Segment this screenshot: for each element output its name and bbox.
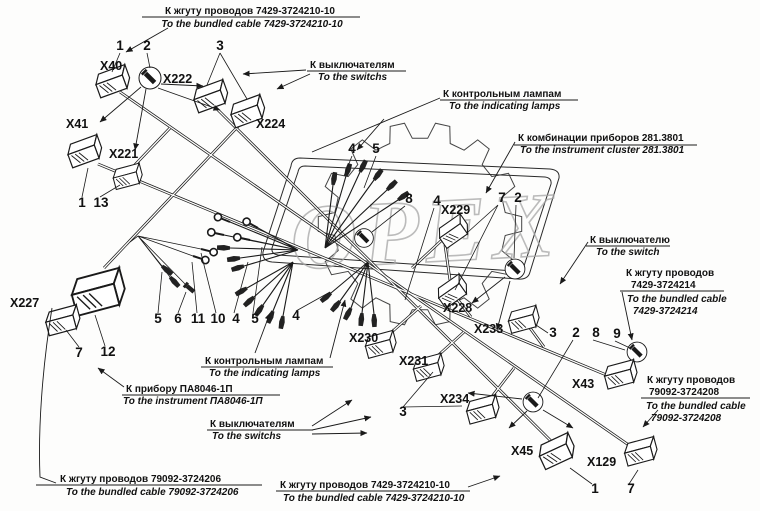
- item-number: 8: [405, 191, 413, 206]
- loose-terminals: [130, 236, 218, 294]
- item-number: 2: [572, 325, 580, 340]
- label-x129: X129: [587, 455, 616, 469]
- connector-x221: [111, 163, 144, 189]
- connector-x222: [191, 80, 231, 113]
- callout-cable214-ru2: 7429-3724214: [631, 280, 696, 291]
- callout-cable208-en2: 79092-3724208: [651, 413, 722, 424]
- callout-switch-right-ru: К выключателю: [590, 235, 670, 246]
- item-number: 3: [216, 38, 224, 53]
- callout-switches-bottom-ru: К выключателям: [210, 419, 295, 430]
- item-number: 7: [627, 481, 635, 496]
- label-x224: X224: [256, 117, 285, 131]
- callout-cluster-ru: К комбинации приборов 281.3801: [518, 132, 684, 144]
- label-x228: X228: [443, 301, 472, 315]
- callout-lamps-bottom-en: To the indicating lamps: [209, 368, 321, 379]
- item-number: 9: [613, 326, 621, 341]
- callout-switches-top-en: To the switchs: [318, 72, 388, 83]
- label-x41: X41: [66, 117, 88, 131]
- callout-cable208-en1: To the bundled cable: [646, 401, 746, 412]
- clamp-icon: [139, 67, 161, 89]
- item-number: 8: [592, 325, 600, 340]
- callout-cable214-en1: To the bundled cable: [627, 294, 727, 305]
- bolt-icon: [355, 229, 374, 248]
- callout-cable208-ru2: 79092-3724208: [649, 387, 720, 398]
- item-number: 4: [348, 141, 356, 156]
- item-number: 4: [433, 193, 441, 208]
- item-number: 5: [372, 141, 380, 156]
- callout-top-en: To the bundled cable 7429-3724210-10: [161, 19, 343, 30]
- item-number: 7: [75, 345, 83, 360]
- callout-lamps-top-en: To the indicating lamps: [449, 101, 561, 112]
- item-number: 3: [399, 404, 407, 419]
- callout-cable208-ru1: К жгуту проводов: [647, 375, 735, 386]
- callout-switch-right-en: To the switch: [596, 247, 660, 258]
- bolt-icon: [627, 342, 647, 362]
- label-x229: X229: [441, 203, 470, 217]
- item-number: 10: [210, 311, 225, 326]
- item-number: 4: [292, 308, 300, 323]
- item-number: 2: [143, 38, 151, 53]
- callout-cable214-ru1: К жгуту проводов: [626, 268, 714, 279]
- item-number: 5: [154, 311, 162, 326]
- wiring-diagram: OPEX: [0, 0, 760, 511]
- connector-x129: [622, 437, 659, 466]
- item-number: 4: [232, 311, 240, 326]
- label-x233: X233: [474, 322, 503, 336]
- item-number: 1: [591, 481, 599, 496]
- callout-lamps-bottom-ru: К контрольным лампам: [205, 356, 323, 367]
- item-number: 5: [251, 311, 259, 326]
- callout-switches-top-ru: К выключателям: [310, 60, 395, 71]
- callout-instrument-en: To the instrument ПА8046-1П: [123, 396, 263, 407]
- callout-cable214-en2: 7429-3724214: [633, 306, 698, 317]
- label-x43: X43: [572, 377, 594, 391]
- label-x230: X230: [349, 331, 378, 345]
- label-x40: X40: [100, 59, 122, 73]
- callout-lamps-top-ru: К контрольным лампам: [443, 89, 561, 100]
- callout-top-ru: К жгуту проводов 7429-3724210-10: [165, 6, 335, 17]
- item-number: 2: [514, 190, 522, 205]
- item-number: 1: [78, 195, 86, 210]
- label-x222: X222: [163, 72, 192, 86]
- connector-x234: [464, 395, 501, 424]
- callout-instrument-ru: К прибору ПА8046-1П: [126, 383, 233, 395]
- clamp-icon: [505, 259, 525, 279]
- item-number: 3: [549, 325, 557, 340]
- fan-left: [207, 212, 298, 272]
- connector-x233: [506, 305, 541, 333]
- item-number: 13: [93, 195, 109, 210]
- label-x45: X45: [511, 444, 533, 458]
- label-x231: X231: [399, 354, 428, 368]
- callout-cable210b-ru: К жгуту проводов 7429-3724210-10: [280, 480, 450, 491]
- item-number: 12: [100, 344, 115, 359]
- item-number: 6: [174, 311, 182, 326]
- item-number: 1: [116, 38, 124, 53]
- connector-x45: [535, 433, 578, 470]
- callout-cable210b-en: To the bundled cable 7429-3724210-10: [283, 493, 465, 504]
- callout-cable206-en: To the bundled cable 79092-3724206: [66, 487, 239, 498]
- label-x227: X227: [10, 296, 39, 310]
- item-number: 11: [191, 311, 206, 326]
- label-x234: X234: [440, 392, 469, 406]
- diagram-canvas: OPEX: [0, 0, 760, 511]
- callout-cluster-en: To the instrument cluster 281.3801: [520, 145, 685, 156]
- connector-x43: [602, 360, 639, 389]
- connector-x227-small: [43, 305, 82, 336]
- item-number: 7: [498, 190, 506, 205]
- fan-lower-left: [234, 262, 293, 329]
- label-x221: X221: [109, 147, 138, 161]
- callout-cable206-ru: К жгуту проводов 79092-3724206: [60, 474, 221, 485]
- callout-switches-bottom-en: To the switchs: [212, 431, 282, 442]
